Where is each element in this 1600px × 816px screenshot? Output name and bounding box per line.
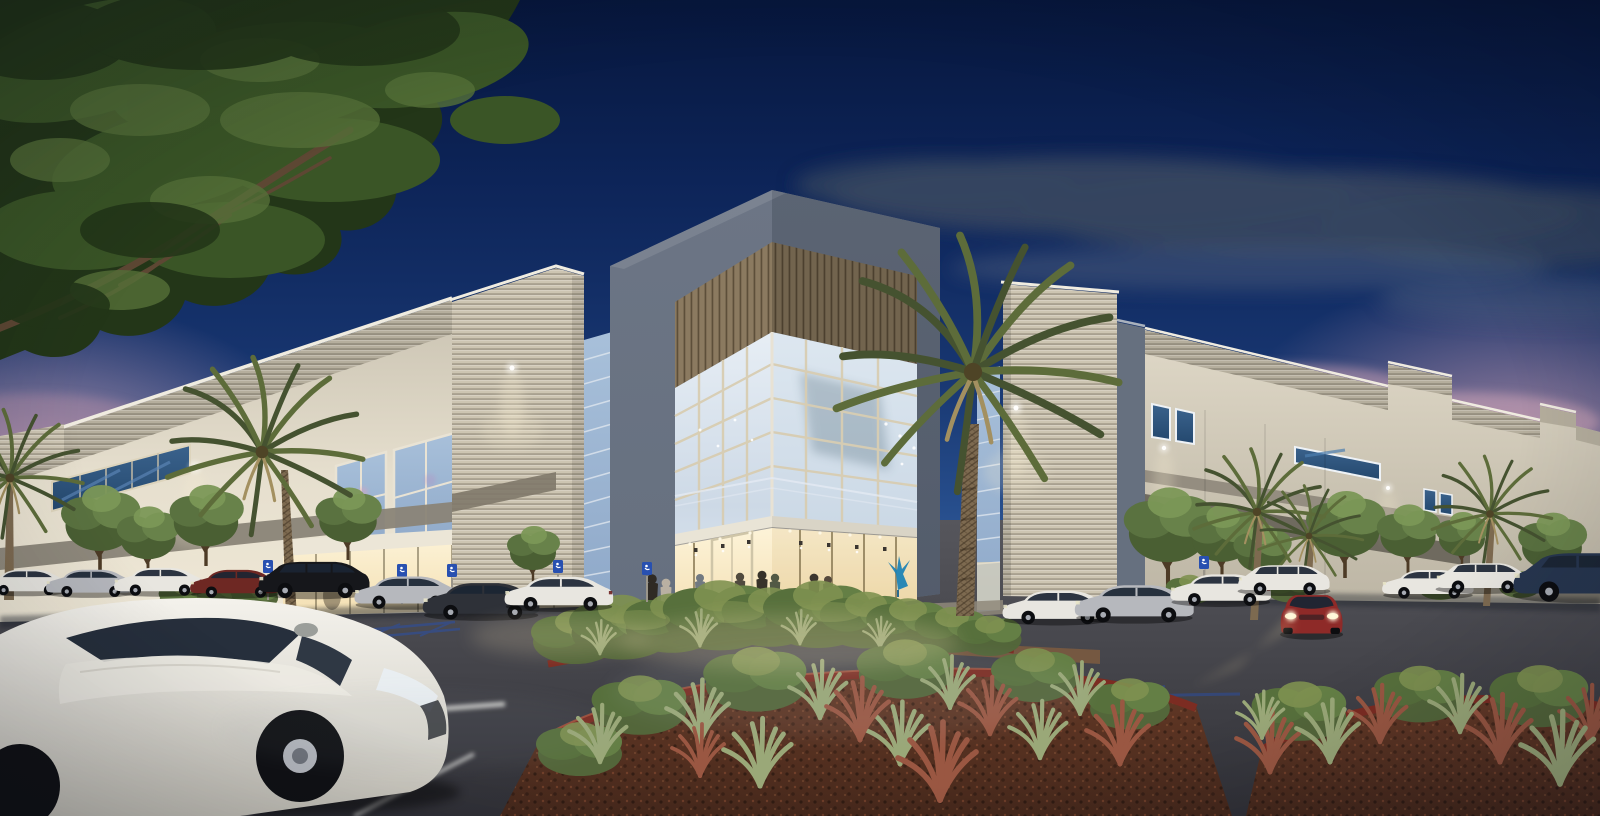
architectural-rendering <box>0 0 1600 816</box>
scene-canvas <box>0 0 1600 816</box>
vignette <box>0 0 1600 816</box>
